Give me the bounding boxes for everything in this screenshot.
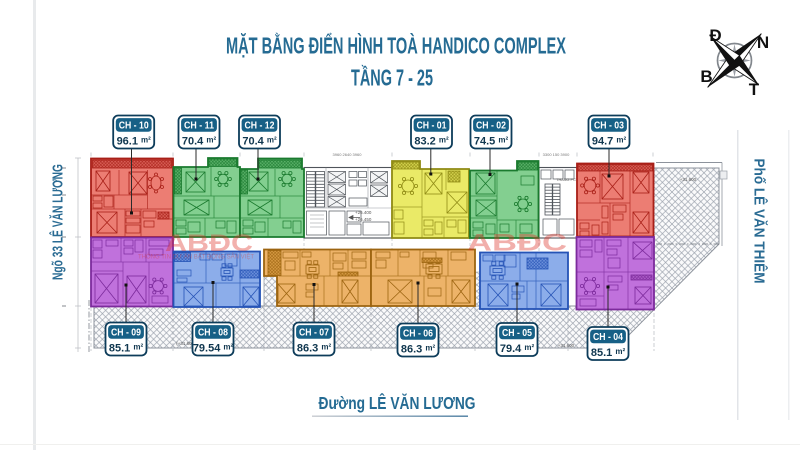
svg-text:CH - 02: CH - 02 (476, 120, 506, 132)
svg-text:CH - 12: CH - 12 (245, 120, 275, 132)
svg-text:ABĐC: ABĐC (467, 230, 567, 257)
svg-text:3300 150 3900: 3300 150 3900 (543, 152, 570, 157)
svg-text:CH - 08: CH - 08 (198, 327, 228, 339)
svg-text:+31.600: +31.600 (680, 177, 697, 182)
svg-text:3960 2640 3960: 3960 2640 3960 (333, 152, 363, 157)
svg-text:CH - 05: CH - 05 (502, 327, 532, 339)
svg-text:THANG PC: THANG PC (556, 178, 576, 182)
svg-text:TẦNG 7 - 25: TẦNG 7 - 25 (351, 64, 433, 91)
svg-text:N: N (757, 33, 769, 52)
svg-text:CH - 06: CH - 06 (403, 328, 433, 340)
svg-text:CH - 07: CH - 07 (299, 327, 329, 339)
svg-text:Đường LÊ VĂN LƯƠNG: Đường LÊ VĂN LƯƠNG (319, 392, 476, 413)
svg-text:CH - 04: CH - 04 (593, 331, 623, 343)
svg-text:MẶT BẰNG ĐIỂN HÌNH TOÀ HANDICO: MẶT BẰNG ĐIỂN HÌNH TOÀ HANDICO COMPLEX (226, 32, 566, 59)
svg-text:+31.600: +31.600 (558, 343, 575, 348)
svg-text:CH - 11: CH - 11 (184, 120, 214, 132)
svg-text:CH - 03: CH - 03 (594, 120, 624, 132)
svg-text:Đ: Đ (709, 26, 721, 45)
svg-text:CH - 09: CH - 09 (111, 327, 141, 339)
svg-text:B: B (700, 67, 712, 86)
svg-text:CH - 01: CH - 01 (417, 120, 447, 132)
svg-text:Ngõ 33 LÊ VĂN LƯƠNG: Ngõ 33 LÊ VĂN LƯƠNG (49, 164, 67, 280)
svg-text:Phố LÊ VĂN THIÊM: Phố LÊ VĂN THIÊM (751, 159, 769, 284)
svg-text:+26.400: +26.400 (355, 210, 372, 215)
svg-text:CH - 10: CH - 10 (119, 120, 149, 132)
svg-text:T: T (749, 80, 760, 99)
